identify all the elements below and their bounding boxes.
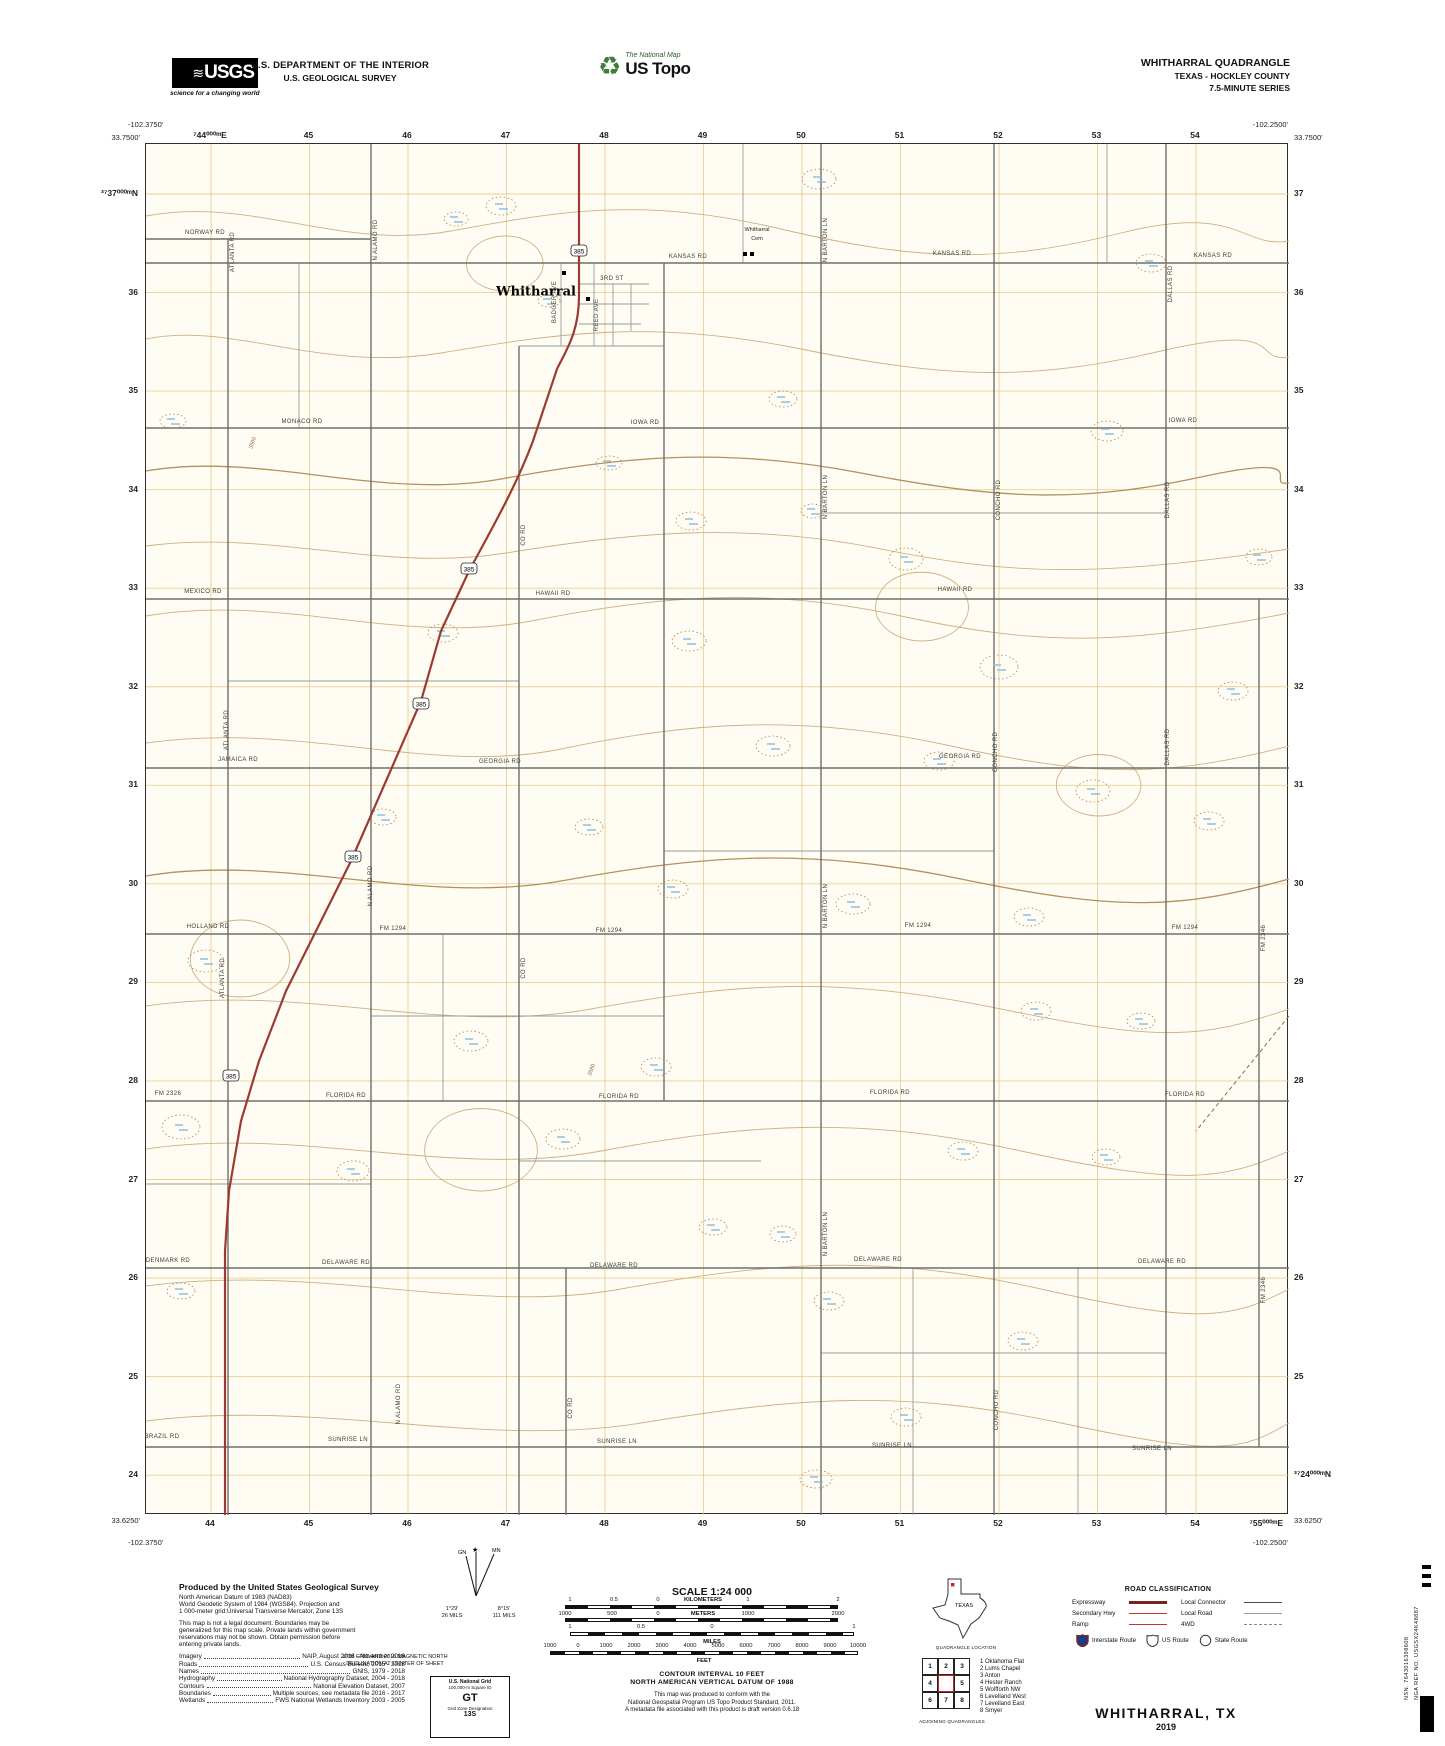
- svg-text:385: 385: [226, 1074, 237, 1081]
- usgs-logo: ≋ USGS: [172, 58, 258, 88]
- road-label: ATLANTA RD: [220, 958, 226, 998]
- m-tick: 1000: [559, 1611, 572, 1617]
- usng-square-label: 100,000-m Square ID: [431, 1685, 509, 1690]
- adjoining-name: 6 Levelland West: [980, 1694, 1026, 1701]
- northing-label: 24: [129, 1469, 138, 1479]
- ustopo-name: US Topo: [625, 59, 690, 79]
- wetland-patch: [1246, 549, 1272, 565]
- wetland-patch: [444, 212, 468, 226]
- road-label: HAWAII RD: [938, 587, 973, 593]
- gn-label: GN: [458, 1550, 466, 1556]
- ft-tick: 9000: [824, 1643, 837, 1649]
- mn-declination: 8°15' 111 MILS: [493, 1606, 516, 1619]
- wetland-patch: [1014, 908, 1044, 926]
- m-tick: 0: [656, 1611, 659, 1617]
- adjoining-quad-names: 1 Oklahoma Flat2 Lums Chapel3 Anton4 Hes…: [980, 1659, 1026, 1715]
- quad-title: WHITHARRAL QUADRANGLE: [1000, 57, 1290, 69]
- topo-map-sheet: ≋ USGS science for a changing world U.S.…: [0, 0, 1445, 1746]
- wetland-patch: [802, 169, 836, 189]
- northing-label: 30: [1294, 878, 1303, 888]
- cemetery-label: Whitharral: [744, 227, 769, 233]
- adjoining-cell: 3: [954, 1658, 970, 1675]
- vertical-datum-note: NORTH AMERICAN VERTICAL DATUM OF 1988: [630, 1679, 794, 1686]
- road-label: ATLANTA RD: [224, 710, 230, 750]
- easting-label: 53: [1092, 1518, 1101, 1528]
- northing-label: 31: [1294, 779, 1303, 789]
- wetland-patch: [676, 512, 706, 530]
- datum-line: World Geodetic System of 1984 (WGS84). P…: [179, 1601, 419, 1608]
- quad-location-dot: [951, 1583, 954, 1586]
- legal-line: generalized for this map scale. Private …: [179, 1627, 419, 1634]
- road-label: FM 2346: [1261, 1277, 1267, 1303]
- ft-tick: 7000: [768, 1643, 781, 1649]
- corner-longitude: -102.2500': [1253, 120, 1288, 129]
- wetland-patch: [575, 819, 603, 835]
- adjoining-name: 8 Smyer: [980, 1708, 1026, 1715]
- usng-square-id: GT: [431, 1692, 509, 1704]
- road-label: DALLAS RD: [1168, 266, 1174, 303]
- road-label: MONACO RD: [282, 419, 323, 425]
- adjoining-name: 7 Levelland East: [980, 1701, 1026, 1708]
- wetland-patch: [546, 1129, 580, 1149]
- fourwd-line: [1244, 1624, 1282, 1625]
- producer-block: Produced by the United States Geological…: [179, 1582, 419, 1705]
- source-row: HydrographyNational Hydrography Dataset,…: [179, 1675, 405, 1682]
- svg-text:★: ★: [472, 1546, 478, 1554]
- secondary-hwy-line: [1129, 1613, 1167, 1614]
- easting-label: 50: [796, 1518, 805, 1528]
- quadrangle-title-block: WHITHARRAL QUADRANGLE TEXAS - HOCKLEY CO…: [1000, 57, 1290, 93]
- route-shield-legend: Interstate Route US Route State Route: [1076, 1634, 1248, 1647]
- scalebar-miles: [570, 1632, 854, 1636]
- easting-label: ⁷44⁰⁰⁰ᵐE: [193, 130, 227, 141]
- easting-label: 46: [402, 1518, 411, 1528]
- wetland-patch: [1008, 1332, 1038, 1350]
- road-label: DELAWARE RD: [1138, 1259, 1186, 1265]
- wetland-patch: [1092, 1149, 1120, 1165]
- easting-label: 49: [698, 130, 707, 140]
- road-label: DALLAS RD: [1165, 482, 1171, 519]
- road-label: N ALAMO RD: [368, 865, 374, 906]
- northing-label: 28: [1294, 1075, 1303, 1085]
- road-label: N BARTON LN: [823, 1212, 829, 1257]
- map-neatline: 385385385385385: [145, 143, 1288, 1514]
- mi-tick: 1: [568, 1624, 571, 1630]
- decl-caption: UTM GRID AND 2016 MAGNETIC NORTH DECLINA…: [320, 1654, 470, 1667]
- northing-label: 34: [129, 484, 138, 494]
- road-label: N ALAMO RD: [373, 219, 379, 260]
- wetland-patch: [769, 391, 797, 407]
- northing-label: 29: [1294, 976, 1303, 986]
- dept-line1: U.S. DEPARTMENT OF THE INTERIOR: [250, 60, 430, 71]
- texas-label: TEXAS: [955, 1603, 973, 1609]
- km-tick: 2: [836, 1597, 839, 1603]
- easting-label: 52: [993, 130, 1002, 140]
- ft-tick: 1000: [600, 1643, 613, 1649]
- adjoining-cell: 4: [922, 1675, 938, 1692]
- quad-subtitle: TEXAS - HOCKLEY COUNTY: [1000, 71, 1290, 81]
- road-label: 3RD ST: [600, 276, 624, 282]
- wetland-patch: [800, 1470, 832, 1488]
- wetland-patch: [337, 1161, 369, 1181]
- northing-label: 35: [1294, 385, 1303, 395]
- svg-text:385: 385: [416, 702, 427, 709]
- easting-label-full: ⁷55⁰⁰⁰ᵐE: [1249, 1518, 1283, 1529]
- legal-line: This map is not a legal document. Bounda…: [179, 1620, 419, 1627]
- m-tick: 1000: [742, 1611, 755, 1617]
- datum-line: 1 000-meter grid:Universal Transverse Me…: [179, 1608, 419, 1615]
- us-route-shield: 385: [413, 698, 429, 709]
- texas-inset-map: TEXAS: [930, 1576, 1000, 1642]
- legal-line: entering private lands.: [179, 1641, 419, 1648]
- northing-label: 34: [1294, 484, 1303, 494]
- road-label: HOLLAND RD: [187, 924, 230, 930]
- road-label: GEORGIA RD: [479, 759, 521, 765]
- easting-label: 47: [501, 1518, 510, 1528]
- ft-tick: 3000: [656, 1643, 669, 1649]
- source-row: NamesGNIS, 1979 - 2018: [179, 1668, 405, 1675]
- source-row: BoundariesMultiple sources; see metadata…: [179, 1690, 405, 1697]
- road-class-row: Secondary Hwy Local Road: [1072, 1610, 1282, 1617]
- building-square: [743, 252, 747, 256]
- mi-unit: MILES: [703, 1639, 721, 1645]
- road-label: ATLANTA RD: [230, 232, 236, 272]
- adjoining-cell: 7: [938, 1692, 954, 1709]
- corner-longitude: -102.2500': [1253, 1538, 1288, 1547]
- northing-label: 33: [129, 582, 138, 592]
- northing-label: 35: [129, 385, 138, 395]
- wetland-patch: [770, 1226, 796, 1242]
- northing-label: 28: [129, 1075, 138, 1085]
- easting-label: 53: [1092, 130, 1101, 140]
- northing-label: 33: [1294, 582, 1303, 592]
- adjoining-name: 2 Lums Chapel: [980, 1666, 1026, 1673]
- northing-label: 26: [1294, 1272, 1303, 1282]
- adjoining-name: 5 Wolfforth NW: [980, 1687, 1026, 1694]
- us-route-shield: 385: [461, 563, 477, 574]
- usgs-tagline: science for a changing world: [170, 90, 290, 97]
- km-tick: 0: [656, 1597, 659, 1603]
- wetland-patch: [814, 1292, 844, 1310]
- road-label: FM 1294: [1172, 925, 1198, 931]
- road-label: CONCHO RD: [994, 1390, 1000, 1431]
- m-tick: 2000: [832, 1611, 845, 1617]
- easting-label: 45: [304, 1518, 313, 1528]
- wetland-patch: [658, 880, 688, 898]
- adjoining-cell: 1: [922, 1658, 938, 1675]
- road-label: FLORIDA RD: [599, 1094, 639, 1100]
- building-square: [586, 297, 590, 301]
- easting-label: 47: [501, 130, 510, 140]
- road-label: SUNRISE LN: [597, 1439, 637, 1445]
- conformance-note: National Geospatial Program US Topo Prod…: [628, 1700, 796, 1706]
- road-label: IOWA RD: [631, 420, 660, 426]
- registration-block: [1420, 1696, 1434, 1732]
- quad-series: 7.5-MINUTE SERIES: [1000, 83, 1290, 93]
- adjoining-quad-grid: 12345678: [922, 1658, 970, 1709]
- northing-label: ³⁷37⁰⁰⁰ᵐN: [101, 188, 138, 199]
- road-label: FLORIDA RD: [1165, 1092, 1205, 1098]
- adjoining-cell: 8: [954, 1692, 970, 1709]
- national-map-icon: ♻: [598, 53, 621, 79]
- northing-label: 25: [1294, 1371, 1303, 1381]
- corner-latitude: 33.7500': [1294, 133, 1323, 142]
- adjoining-name: 1 Oklahoma Flat: [980, 1659, 1026, 1666]
- wetland-patch: [891, 1408, 921, 1426]
- legal-line: reservations may not be shown. Obtain pe…: [179, 1634, 419, 1641]
- registration-mark: [1422, 1583, 1431, 1587]
- road-label: KANSAS RD: [1194, 253, 1232, 259]
- road-label: DENMARK RD: [146, 1258, 190, 1264]
- national-map-brand: The National Map: [625, 52, 690, 59]
- nga-ref-text: NGA REF NO. USGSX24K48887: [1414, 1606, 1420, 1700]
- us-385-highway: [225, 144, 579, 1515]
- ramp-line: [1129, 1624, 1167, 1625]
- expressway-line: [1129, 1601, 1167, 1604]
- adjoining-cell: 5: [954, 1675, 970, 1692]
- wetland-patch: [188, 950, 224, 972]
- easting-label: 54: [1190, 130, 1199, 140]
- northing-label: 31: [129, 779, 138, 789]
- road-label: NORWAY RD: [185, 230, 225, 236]
- road-label: SUNRISE LN: [1132, 1446, 1172, 1452]
- wetland-patch: [672, 631, 706, 651]
- northing-label: 27: [1294, 1174, 1303, 1184]
- easting-label: 44: [205, 1518, 214, 1528]
- ft-tick: 10000: [850, 1643, 866, 1649]
- road-label: IOWA RD: [1169, 418, 1198, 424]
- us-route-shield: 385: [223, 1070, 239, 1081]
- wetland-patch: [641, 1058, 671, 1076]
- easting-label: 45: [304, 130, 313, 140]
- adjoining-caption: ADJOINING QUADRANGLES: [919, 1719, 985, 1724]
- sheet-year: 2019: [1156, 1722, 1176, 1732]
- easting-label: 48: [599, 1518, 608, 1528]
- road-label: HAWAII RD: [536, 591, 571, 597]
- m-tick: 500: [607, 1611, 617, 1617]
- road-label: N BARTON LN: [823, 218, 829, 263]
- road-label: DELAWARE RD: [590, 1263, 638, 1269]
- usng-box: U.S. National Grid 100,000-m Square ID G…: [430, 1676, 510, 1738]
- corner-latitude: 33.6250': [1294, 1516, 1323, 1525]
- road-label: CO RD: [521, 957, 527, 978]
- northing-label: 27: [129, 1174, 138, 1184]
- wetland-patch: [1091, 421, 1123, 441]
- northing-label: 36: [1294, 287, 1303, 297]
- ft-unit: FEET: [697, 1658, 712, 1664]
- nsn-text: NSN. 7643016398608: [1404, 1637, 1410, 1700]
- easting-label: 51: [895, 1518, 904, 1528]
- wetland-patch: [454, 1031, 488, 1051]
- sheet-title: WHITHARRAL, TX: [1095, 1705, 1237, 1721]
- wetland-patch: [160, 414, 186, 428]
- ft-tick: 6000: [740, 1643, 753, 1649]
- usng-gzd: 13S: [431, 1711, 509, 1718]
- road-label: DELAWARE RD: [322, 1260, 370, 1266]
- km-tick: 1: [746, 1597, 749, 1603]
- km-unit: KILOMETERS: [684, 1597, 722, 1603]
- svg-text:385: 385: [574, 249, 585, 256]
- road-label: N BARTON LN: [823, 475, 829, 520]
- us-route-shield-icon: [1146, 1634, 1159, 1647]
- m-unit: METERS: [691, 1611, 715, 1617]
- road-label: GEORGIA RD: [939, 754, 981, 760]
- northing-label: 36: [129, 287, 138, 297]
- adjoining-cell: 2: [938, 1658, 954, 1675]
- dept-line2: U.S. GEOLOGICAL SURVEY: [250, 73, 430, 83]
- contour-lines: [146, 210, 1289, 1447]
- corner-latitude: 33.7500': [111, 133, 140, 142]
- quad-location-caption: QUADRANGLE LOCATION: [936, 1645, 996, 1650]
- source-row: WetlandsFWS National Wetlands Inventory …: [179, 1697, 405, 1704]
- road-class-row: Ramp 4WD: [1072, 1621, 1282, 1628]
- easting-label: 49: [698, 1518, 707, 1528]
- northing-label: 30: [129, 878, 138, 888]
- northing-label: 32: [129, 681, 138, 691]
- us-route-shield: 385: [345, 851, 361, 862]
- wetland-patch: [162, 1115, 200, 1139]
- adjoining-name: 4 Hester Ranch: [980, 1680, 1026, 1687]
- wetland-patch: [1076, 780, 1110, 802]
- conformance-note: This map was produced to conform with th…: [654, 1692, 770, 1698]
- northing-label-full: ³⁷24⁰⁰⁰ᵐN: [1294, 1469, 1331, 1480]
- northing-label: 32: [1294, 681, 1303, 691]
- ft-tick: 2000: [628, 1643, 641, 1649]
- ft-tick: 0: [576, 1643, 579, 1649]
- us-route-shield: 385: [571, 245, 587, 256]
- road-label: CONCHO RD: [996, 480, 1002, 521]
- easting-label: 51: [895, 130, 904, 140]
- local-road-line: [1244, 1613, 1282, 1614]
- state-route-icon: [1199, 1634, 1212, 1647]
- northing-label: 37: [1294, 188, 1303, 198]
- road-label: FM 1294: [905, 923, 931, 929]
- scalebar-kilometers: [565, 1605, 838, 1609]
- registration-mark: [1422, 1574, 1431, 1578]
- mi-tick: 0: [710, 1624, 713, 1630]
- wetland-patch: [1021, 1002, 1051, 1020]
- road-label: FLORIDA RD: [326, 1093, 366, 1099]
- building-square: [750, 252, 754, 256]
- adjoining-name: 3 Anton: [980, 1673, 1026, 1680]
- decl-diagram: ★ MN GN: [436, 1544, 516, 1602]
- cemetery-label: Cem: [751, 236, 763, 242]
- road-label: FM 1294: [380, 926, 406, 932]
- km-tick: 1: [568, 1597, 571, 1603]
- road-label: DALLAS RD: [1165, 729, 1171, 766]
- wetland-patch: [948, 1142, 978, 1160]
- wetland-patch: [486, 197, 516, 215]
- road-label: KANSAS RD: [933, 251, 971, 257]
- usgs-wave-icon: ≋: [192, 65, 202, 82]
- town-label: Whitharral: [496, 285, 576, 300]
- mn-label: MN: [492, 1548, 501, 1554]
- contour-interval-note: CONTOUR INTERVAL 10 FEET: [659, 1671, 764, 1678]
- road-label: CONCHO RD: [993, 732, 999, 773]
- road-label: N ALAMO RD: [396, 1383, 402, 1424]
- ft-tick: 1000: [544, 1643, 557, 1649]
- ft-tick: 4000: [684, 1643, 697, 1649]
- scalebar-meters: [565, 1618, 838, 1622]
- wetland-patch: [1218, 682, 1248, 700]
- wetland-patch: [836, 894, 870, 914]
- road-label: JAMAICA RD: [218, 757, 258, 763]
- easting-label: 48: [599, 130, 608, 140]
- mi-tick: 0.5: [637, 1624, 645, 1630]
- wetland-patch: [756, 736, 790, 756]
- adjoining-cell: 6: [922, 1692, 938, 1709]
- corner-latitude: 33.6250': [111, 1516, 140, 1525]
- road-class-row: Expressway Local Connector: [1072, 1599, 1282, 1606]
- easting-label: 50: [796, 130, 805, 140]
- road-label: CO RD: [521, 524, 527, 545]
- interstate-shield-icon: [1076, 1634, 1089, 1647]
- map-canvas: 385385385385385: [146, 144, 1289, 1515]
- conformance-note: A metadata file associated with this pro…: [625, 1707, 799, 1713]
- road-label: FM 1294: [596, 928, 622, 934]
- road-label: MEXICO RD: [184, 589, 222, 595]
- ustopo-logo: ♻ The National Map US Topo: [598, 52, 690, 79]
- svg-text:385: 385: [348, 855, 359, 862]
- northing-label: 29: [129, 976, 138, 986]
- road-label: FM 2346: [1261, 925, 1267, 951]
- produced-by: Produced by the United States Geological…: [179, 1582, 419, 1592]
- adjoining-cell: [938, 1675, 954, 1692]
- scalebar-feet: [550, 1651, 858, 1655]
- northing-label: 25: [129, 1371, 138, 1381]
- road-label: DELAWARE RD: [854, 1257, 902, 1263]
- northing-label: 26: [129, 1272, 138, 1282]
- road-label: N BARTON LN: [823, 884, 829, 929]
- road-label: SUNRISE LN: [328, 1437, 368, 1443]
- km-tick: 0.5: [610, 1597, 618, 1603]
- road-label: KANSAS RD: [669, 254, 707, 260]
- road-label: FM 2326: [155, 1091, 181, 1097]
- road-label: SUNRISE LN: [872, 1443, 912, 1449]
- easting-label: 52: [993, 1518, 1002, 1528]
- road-label: REED AVE: [594, 299, 600, 332]
- wetland-patch: [1194, 812, 1224, 830]
- easting-label: 54: [1190, 1518, 1199, 1528]
- easting-label: 46: [402, 130, 411, 140]
- registration-mark: [1422, 1565, 1431, 1569]
- wetland-patch: [1127, 1013, 1155, 1029]
- department-heading: U.S. DEPARTMENT OF THE INTERIOR U.S. GEO…: [250, 60, 430, 83]
- road-class-title: ROAD CLASSIFICATION: [1125, 1586, 1211, 1593]
- svg-text:385: 385: [464, 567, 475, 574]
- source-row: ContoursNational Elevation Dataset, 2007: [179, 1683, 405, 1690]
- road-label: CO RD: [568, 1397, 574, 1418]
- usgs-logo-text: USGS: [204, 62, 254, 84]
- wetland-patch: [167, 1283, 195, 1299]
- building-square: [562, 271, 566, 275]
- corner-longitude: -102.3750': [128, 1538, 163, 1547]
- gn-declination: 1°29' 26 MILS: [442, 1606, 462, 1619]
- road-label: BRAZIL RD: [145, 1434, 180, 1440]
- datum-line: North American Datum of 1983 (NAD83): [179, 1594, 419, 1601]
- mi-tick: 1: [852, 1624, 855, 1630]
- road-label: FLORIDA RD: [870, 1090, 910, 1096]
- corner-longitude: -102.3750': [128, 120, 163, 129]
- ft-tick: 8000: [796, 1643, 809, 1649]
- local-connector-line: [1244, 1602, 1282, 1603]
